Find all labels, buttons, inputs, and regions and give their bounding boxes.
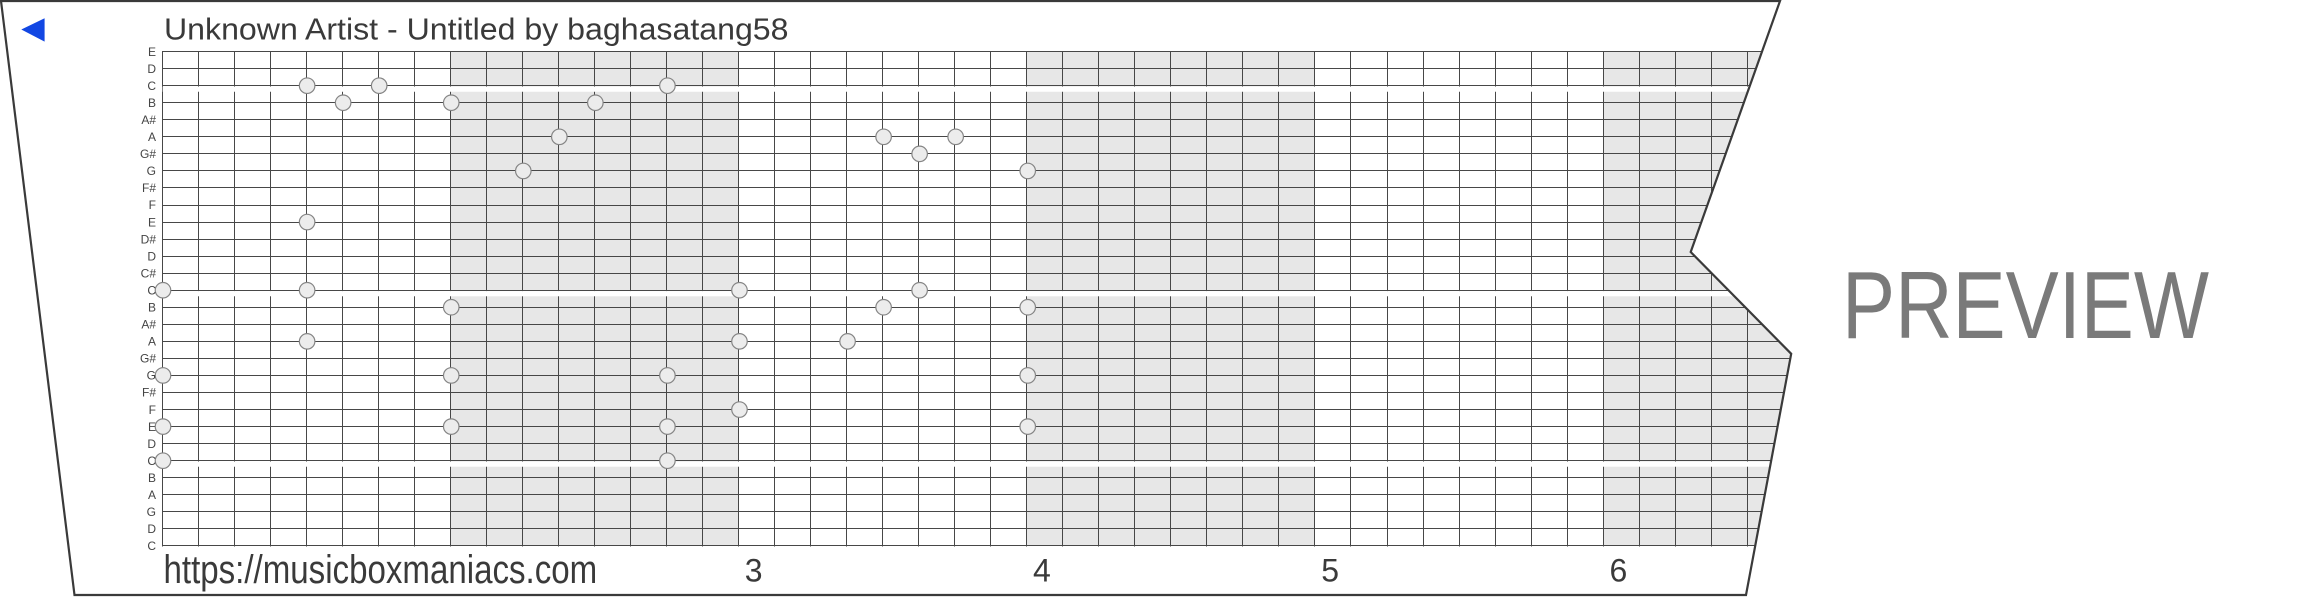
svg-text:C: C	[147, 539, 156, 553]
svg-text:D: D	[147, 249, 156, 263]
svg-text:5: 5	[1321, 553, 1339, 589]
svg-text:G: G	[147, 164, 156, 178]
svg-text:B: B	[148, 471, 156, 485]
svg-text:A#: A#	[141, 318, 156, 332]
svg-text:D: D	[147, 437, 156, 451]
svg-text:A#: A#	[141, 113, 156, 127]
svg-text:4: 4	[1033, 553, 1051, 589]
svg-text:D: D	[147, 62, 156, 76]
svg-text:E: E	[148, 420, 156, 434]
svg-text:C: C	[147, 283, 156, 297]
svg-text:F: F	[149, 403, 156, 417]
svg-text:A: A	[148, 130, 156, 144]
svg-text:https://musicboxmaniacs.com: https://musicboxmaniacs.com	[164, 548, 598, 592]
svg-text:3: 3	[745, 553, 763, 589]
svg-text:G: G	[147, 505, 156, 519]
svg-text:A: A	[148, 335, 156, 349]
svg-text:B: B	[148, 96, 156, 110]
svg-text:C: C	[147, 454, 156, 468]
svg-text:PREVIEW: PREVIEW	[1842, 252, 2209, 359]
svg-text:6: 6	[1610, 553, 1628, 589]
svg-text:B: B	[148, 300, 156, 314]
svg-text:Unknown Artist - Untitled by b: Unknown Artist - Untitled by baghasatang…	[164, 12, 789, 47]
svg-text:F: F	[149, 198, 156, 212]
svg-text:D#: D#	[141, 232, 157, 246]
svg-text:G#: G#	[140, 352, 156, 366]
svg-text:F#: F#	[142, 386, 156, 400]
svg-text:F#: F#	[142, 181, 156, 195]
svg-text:C#: C#	[141, 266, 157, 280]
svg-text:E: E	[148, 215, 156, 229]
svg-text:A: A	[148, 488, 156, 502]
svg-text:G#: G#	[140, 147, 156, 161]
svg-text:E: E	[148, 45, 156, 59]
svg-text:D: D	[147, 522, 156, 536]
svg-text:C: C	[147, 79, 156, 93]
svg-text:G: G	[147, 369, 156, 383]
